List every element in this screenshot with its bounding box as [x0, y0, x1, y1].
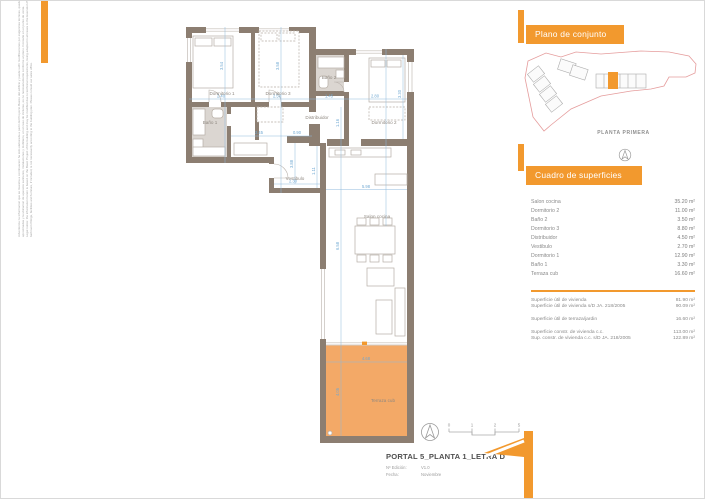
row-value: 35.20 m²	[675, 199, 695, 205]
row-value: 3.50 m²	[677, 217, 695, 223]
row-label: Vestibulo	[531, 244, 552, 250]
site-buildings	[527, 59, 646, 112]
highlighted-unit	[608, 72, 618, 89]
table-row: Dormitorio 211.00 m²	[531, 206, 695, 215]
sink-symbol	[193, 139, 203, 148]
dim-label: 1.16	[335, 118, 340, 127]
sofa-symbol	[367, 268, 394, 286]
summary-value: 90.09 m²	[676, 304, 695, 310]
bathtub-symbol	[318, 57, 344, 68]
row-label: Terraza cub	[531, 271, 558, 277]
scale-tick-label: 2	[494, 423, 497, 428]
summary-row: Superficie útil de terraza/jardin16.60 m…	[531, 317, 695, 323]
table-row: Dormitorio 38.80 m²	[531, 224, 695, 233]
table-row: Baño 13.30 m²	[531, 261, 695, 270]
north-arrow-icon	[616, 146, 634, 164]
table-row: Dormitorio 112.90 m²	[531, 252, 695, 261]
brand-logo-icon	[481, 429, 541, 499]
room-label-dormitorio3: Dormitorio 3	[265, 91, 290, 96]
edition-label: Nº Edición:	[386, 465, 416, 470]
date-value: Noviembre	[421, 472, 481, 477]
closet-symbol	[257, 107, 283, 122]
table-row: Distribuidor4.50 m²	[531, 233, 695, 242]
edition-value: V1.0	[421, 465, 481, 470]
row-label: Baño 2	[531, 217, 547, 223]
dim-label: 5.98	[362, 184, 371, 189]
chaise-symbol	[376, 300, 392, 334]
summary-label: Superficie útil de vivienda s/D JA. 218/…	[531, 304, 625, 310]
row-value: 2.70 m²	[677, 244, 695, 250]
dim-label: 3.88	[289, 159, 294, 168]
dim-label: 4.68	[362, 356, 371, 361]
wardrobe-symbol	[369, 107, 405, 120]
dim-label: 6.58	[335, 241, 340, 250]
summary-value: 122.89 m²	[673, 336, 695, 342]
dim-label: 3.54	[219, 61, 224, 70]
surfaces-table: Salon cocina35.20 m² Dormitorio 211.00 m…	[531, 197, 695, 279]
header-accent-bar	[518, 144, 524, 171]
room-label-vestibulo: Vestibulo	[286, 176, 305, 181]
legal-disclaimer: Advertencia: la informacion que se muest…	[18, 61, 34, 237]
row-value: 12.90 m²	[675, 253, 695, 259]
terrace-door-marker	[362, 342, 367, 345]
summary-group: Superficie útil de vivienda81.90 m² Supe…	[531, 298, 695, 311]
summary-label: Superficie útil de terraza/jardin	[531, 317, 597, 323]
site-plan	[521, 47, 703, 133]
room-label-terraza: Terraza cub	[371, 398, 395, 403]
table-row: Terraza cub16.60 m²	[531, 270, 695, 279]
sink-symbol	[336, 70, 344, 78]
row-value: 3.30 m²	[677, 262, 695, 268]
dim-label: 3.58	[275, 61, 280, 70]
corner-accent-bar	[41, 1, 48, 63]
table-row: Baño 23.50 m²	[531, 215, 695, 224]
door-gaps	[209, 82, 361, 178]
dim-label: 1.45	[325, 94, 334, 99]
room-label-bano1: Baño 1	[203, 120, 218, 125]
row-value: 4.50 m²	[677, 235, 695, 241]
dining-table-symbol	[355, 218, 395, 262]
dim-label: 2.80	[371, 94, 380, 99]
room-label-dormitorio2: Dormitorio 2	[371, 120, 396, 125]
scale-tick-label: 5	[518, 423, 521, 428]
row-value: 11.00 m²	[675, 208, 695, 214]
orange-divider	[531, 290, 695, 292]
date-label: Fecha:	[386, 472, 416, 477]
disclaimer-line: bathroom fittings, facilities and furnit…	[30, 61, 34, 237]
scale-tick-label: 1	[471, 423, 474, 428]
scale-tick-label: 0	[448, 423, 451, 428]
bed-symbol	[193, 36, 233, 88]
dim-label: 3.30	[397, 89, 402, 98]
room-label-salon: Salon cocina	[364, 214, 391, 219]
drain-symbol	[328, 431, 332, 435]
row-label: Dormitorio 2	[531, 208, 559, 214]
floor-plan: 2.40 2.50 1.45 2.80 2.45 0.90 2.30 5.98 …	[179, 6, 459, 466]
bed-symbol	[259, 31, 299, 87]
row-label: Distribuidor	[531, 235, 557, 241]
room-label-distribuidor: Distribuidor	[305, 115, 329, 120]
dim-label: 0.90	[293, 130, 302, 135]
row-value: 8.80 m²	[677, 226, 695, 232]
dim-label: 1.11	[311, 166, 316, 174]
summary-value: 16.60 m²	[676, 317, 695, 323]
plan-sheet: Advertencia: la informacion que se muest…	[0, 0, 705, 499]
closet-symbol	[193, 147, 225, 156]
row-label: Dormitorio 1	[531, 253, 559, 259]
site-plan-title: Plano de conjunto	[526, 25, 624, 44]
header-accent-bar	[518, 10, 524, 43]
summary-group: Superficie útil de terraza/jardin16.60 m…	[531, 317, 695, 323]
toilet-symbol	[212, 109, 223, 118]
surfaces-title: Cuadro de superficies	[526, 166, 642, 185]
room-label-dormitorio1: Dormitorio 1	[209, 91, 234, 96]
dim-label: 4.05	[335, 387, 340, 396]
row-label: Salon cocina	[531, 199, 561, 205]
tv-unit-symbol	[395, 288, 405, 336]
summary-group: Superficie constr. de vivienda c.c.113.0…	[531, 330, 695, 343]
table-row: Vestibulo2.70 m²	[531, 242, 695, 251]
table-row: Salon cocina35.20 m²	[531, 197, 695, 206]
row-value: 16.60 m²	[675, 271, 695, 277]
room-label-bano2: Baño 2	[322, 75, 337, 80]
row-label: Dormitorio 3	[531, 226, 559, 232]
summary-label: Sup. constr. de vivienda c.c. s/D JA. 21…	[531, 336, 631, 342]
kitchen-island-symbol	[375, 174, 407, 185]
dim-label: 2.45	[255, 130, 264, 135]
kitchen-counter-symbol	[329, 148, 391, 157]
summary-row: Sup. constr. de vivienda c.c. s/D JA. 21…	[531, 336, 695, 342]
site-plan-caption: PLANTA PRIMERA	[571, 130, 676, 136]
closet-symbol	[234, 143, 267, 155]
row-label: Baño 1	[531, 262, 547, 268]
surfaces-summary: Superficie útil de vivienda81.90 m² Supe…	[531, 298, 695, 349]
north-arrow-icon	[417, 419, 443, 445]
summary-row: Superficie útil de vivienda s/D JA. 218/…	[531, 304, 695, 310]
